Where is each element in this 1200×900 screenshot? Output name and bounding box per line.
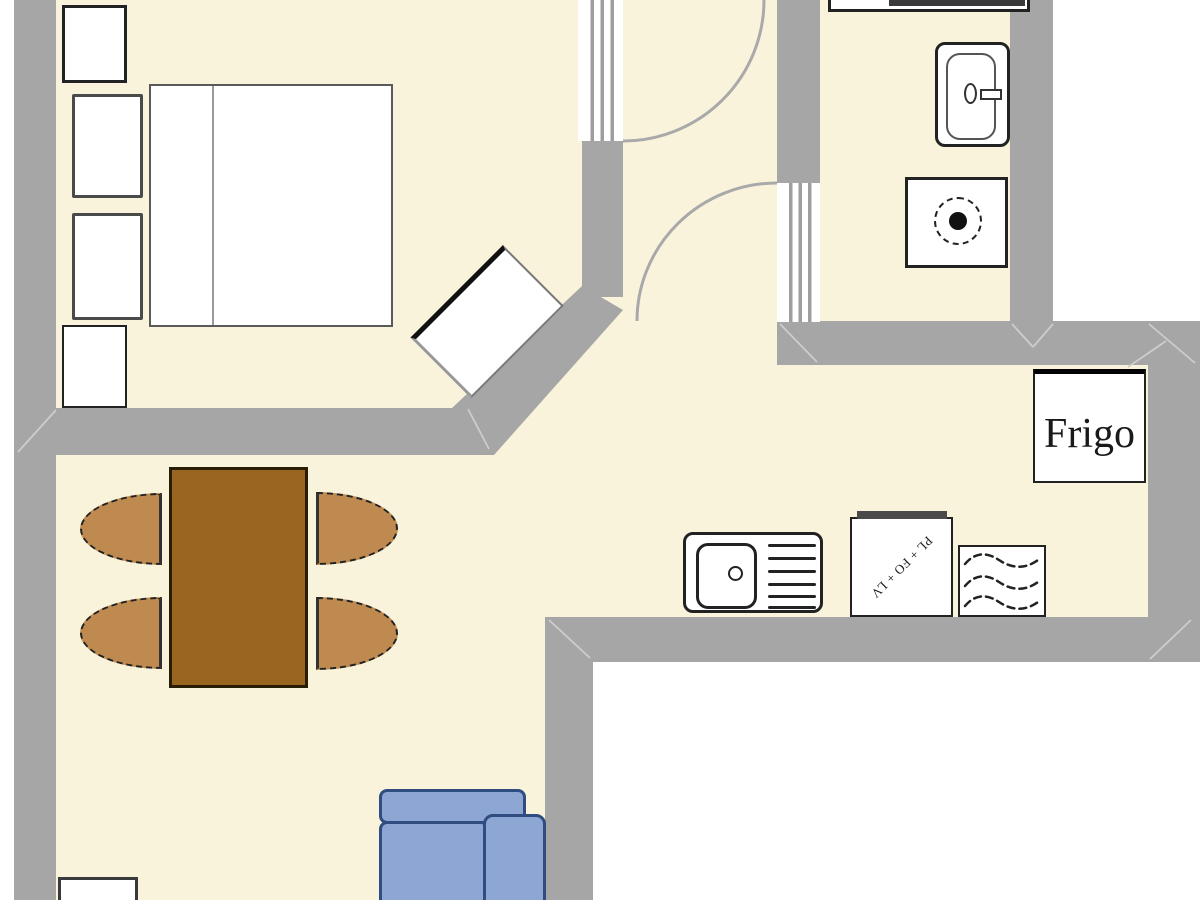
stove-label: PL + FO + LV (867, 533, 936, 602)
double-bed (149, 84, 393, 327)
drainboard-line (768, 544, 816, 547)
toilet-handle (980, 89, 1002, 100)
pillow-bottom (72, 213, 143, 320)
sofa-armrest (483, 814, 546, 900)
drainboard-line (768, 557, 816, 560)
vanity-bar (889, 0, 1025, 6)
bed-fold-line (212, 86, 214, 325)
kitchen-sink (683, 532, 823, 613)
fridge-label: Frigo (1044, 410, 1135, 458)
washing-machine (905, 177, 1008, 268)
sink-drain (728, 566, 743, 581)
low-cabinet (58, 877, 138, 900)
dining-table (169, 467, 308, 688)
washing-machine-dot (949, 212, 967, 230)
toilet (935, 42, 1010, 147)
sofa-seat (379, 821, 489, 900)
dishwasher (958, 545, 1046, 617)
drainboard-line (768, 595, 816, 598)
washing-machine-drum-icon (934, 197, 982, 245)
stove-unit: PL + FO + LV (850, 517, 953, 617)
pillow-top (72, 94, 143, 198)
floor-plan: Frigo PL + FO + LV (0, 0, 1200, 900)
toilet-flush-oval (964, 83, 977, 104)
drainboard-line (768, 570, 816, 573)
nightstand-bottom (62, 325, 127, 408)
bathroom-door-leaf (777, 183, 820, 322)
dishwasher-wave-icon (960, 547, 1043, 614)
drainboard-line (768, 583, 816, 586)
drainboard-line (768, 606, 816, 609)
sink-basin (696, 543, 757, 609)
wall-left (14, 0, 56, 900)
stove-back-bar (857, 511, 947, 519)
wall-living-right (545, 617, 593, 900)
fridge: Frigo (1033, 369, 1146, 483)
bedroom-door-leaf (578, 0, 623, 141)
bath-vanity (828, 0, 1030, 12)
nightstand-top (62, 5, 127, 83)
